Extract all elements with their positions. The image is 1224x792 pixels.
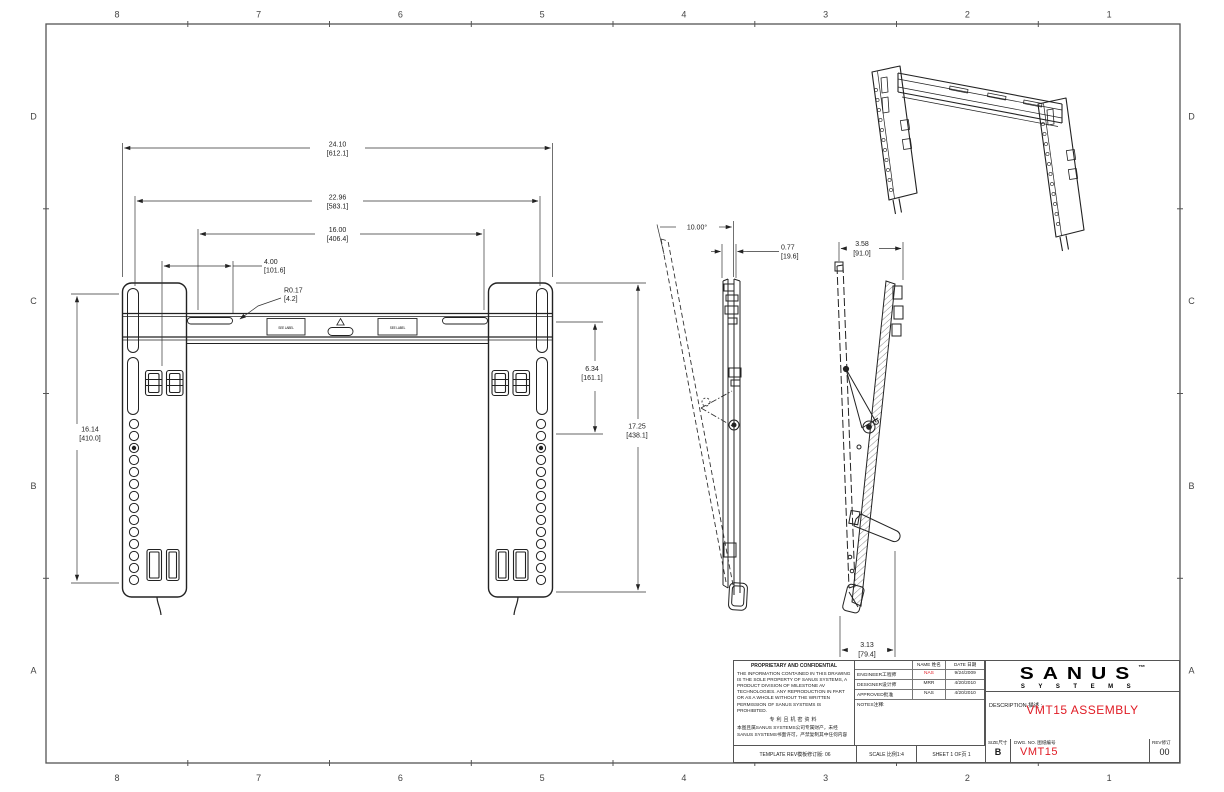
- sheet-label: SHEET 1 OF页 1: [917, 746, 986, 762]
- svg-text:[438.1]: [438.1]: [626, 433, 647, 440]
- alignment-triangle-icon: [337, 319, 344, 326]
- svg-text:C: C: [30, 296, 37, 306]
- dwg-cell: DWG. NO. 图纸编号 VMT15: [1011, 739, 1150, 762]
- svg-text:[101.6]: [101.6]: [264, 268, 285, 275]
- svg-text:8: 8: [114, 773, 119, 783]
- svg-text:2: 2: [965, 10, 970, 20]
- size-label: SIZE尺寸: [988, 740, 1008, 746]
- svg-text:6.34: 6.34: [585, 366, 599, 373]
- svg-text:4.00: 4.00: [264, 259, 278, 266]
- svg-text:D: D: [30, 112, 37, 122]
- svg-text:B: B: [1188, 481, 1194, 491]
- proprietary-heading-zh: 专利且机密资料: [737, 716, 851, 723]
- side-view-open: 3.58 [91.0] 3.13 [79.4]: [835, 241, 903, 659]
- svg-text:[612.1]: [612.1]: [327, 151, 348, 158]
- front-view: SEE LABEL SEE LABEL 24.10 [612.1] 22.96: [71, 142, 648, 616]
- rev-value: 00: [1152, 747, 1177, 757]
- proprietary-notice: PROPRIETARY AND CONFIDENTIAL THE INFORMA…: [734, 661, 855, 745]
- approvals-table: NAME 姓名 DATE 日期 ENGINEER工程师 NAS 9/24/200…: [855, 661, 985, 745]
- svg-text:[410.0]: [410.0]: [79, 436, 100, 443]
- size-value: B: [988, 747, 1008, 757]
- svg-text:R0.17: R0.17: [284, 288, 303, 295]
- svg-text:C: C: [1188, 296, 1195, 306]
- svg-text:7: 7: [256, 10, 261, 20]
- approvals-name-header: NAME 姓名: [913, 661, 947, 669]
- svg-text:8: 8: [114, 10, 119, 20]
- svg-text:3: 3: [823, 10, 828, 20]
- scale-label: SCALE 比例1:4: [857, 746, 917, 762]
- svg-text:[4.2]: [4.2]: [284, 296, 298, 303]
- svg-text:D: D: [1188, 112, 1195, 122]
- proprietary-body: THE INFORMATION CONTAINED IN THIS DRAWIN…: [737, 671, 851, 714]
- rev-label: REV修订: [1152, 740, 1177, 746]
- approvals-row-designer: DESIGNER设计师 MRR 4/20/2010: [855, 680, 984, 690]
- svg-text:24.10: 24.10: [329, 142, 347, 149]
- trademark-symbol: ™: [1138, 664, 1145, 670]
- approvals-date-header: DATE 日期: [946, 661, 984, 669]
- isometric-rail: [898, 73, 1062, 127]
- proprietary-body-zh: 本图且属SANUS SYSTEMS公司专属财产，未经SANUS SYSTEMS书…: [737, 725, 851, 738]
- svg-text:17.25: 17.25: [628, 424, 646, 431]
- proprietary-heading: PROPRIETARY AND CONFIDENTIAL: [737, 663, 851, 670]
- svg-text:5: 5: [540, 773, 545, 783]
- svg-text:4: 4: [681, 773, 686, 783]
- notes-label: NOTES注释:: [855, 700, 984, 745]
- side-view-tilt: 10.00° 0.77 [19.6]: [657, 221, 799, 610]
- svg-text:22.96: 22.96: [329, 195, 347, 202]
- approvals-row-engineer: ENGINEER工程师 NAS 9/24/2009: [855, 670, 984, 680]
- svg-text:4: 4: [681, 10, 686, 20]
- svg-text:7: 7: [256, 773, 261, 783]
- svg-text:16.00: 16.00: [329, 227, 347, 234]
- size-cell: SIZE尺寸 B: [986, 739, 1011, 762]
- rev-cell: REV修订 00: [1150, 739, 1179, 762]
- svg-text:1: 1: [1107, 773, 1112, 783]
- sheet-border: [43, 21, 1183, 766]
- tilt-angle-label: 10.00°: [687, 224, 708, 232]
- rail-label-text: SEE LABEL: [278, 326, 294, 330]
- svg-text:6: 6: [398, 773, 403, 783]
- svg-text:[161.1]: [161.1]: [581, 375, 602, 382]
- svg-text:3: 3: [823, 773, 828, 783]
- sanus-logo-text: SANUS: [1020, 664, 1139, 683]
- svg-text:[583.1]: [583.1]: [327, 204, 348, 211]
- svg-text:[406.4]: [406.4]: [327, 236, 348, 243]
- svg-text:1: 1: [1107, 10, 1112, 20]
- brand-logo: SANUS™ SYSTEMS: [986, 661, 1179, 692]
- svg-text:[79.4]: [79.4]: [858, 652, 876, 659]
- dwg-value: VMT15: [1020, 746, 1146, 758]
- sanus-systems-text: SYSTEMS: [1021, 684, 1144, 690]
- title-block-strip: TEMPLATE REV模板修订版: 06 SCALE 比例1:4 SHEET …: [734, 745, 986, 762]
- description-value: VMT15 ASSEMBLY: [986, 703, 1179, 717]
- svg-text:B: B: [30, 481, 36, 491]
- svg-text:A: A: [1188, 666, 1194, 676]
- svg-text:6: 6: [398, 10, 403, 20]
- description-cell: DESCRIPTION 描述 : VMT15 ASSEMBLY: [986, 692, 1179, 739]
- rail-label-text: SEE LABEL: [390, 326, 406, 330]
- svg-text:A: A: [30, 666, 36, 676]
- title-block: PROPRIETARY AND CONFIDENTIAL THE INFORMA…: [733, 660, 1180, 763]
- tilt-dimensions: [657, 221, 779, 278]
- template-rev: TEMPLATE REV模板修订版: 06: [734, 746, 857, 762]
- tilt-depth-label: 0.77: [781, 245, 795, 252]
- svg-text:3.13: 3.13: [860, 642, 874, 649]
- title-block-brand-section: SANUS™ SYSTEMS DESCRIPTION 描述 : VMT15 AS…: [986, 661, 1179, 762]
- svg-text:16.14: 16.14: [81, 427, 99, 434]
- approvals-row-approved: APPROVED批准 NAS 4/20/2010: [855, 690, 984, 700]
- drawing-sheet: 8 7 6 5 4 3 2 1 8 7 6 5 4 3 2 1 D C B A …: [0, 0, 1224, 792]
- svg-text:2: 2: [965, 773, 970, 783]
- svg-text:3.58: 3.58: [855, 241, 869, 248]
- svg-text:[91.0]: [91.0]: [853, 251, 871, 258]
- isometric-view: [872, 66, 1084, 251]
- svg-text:[19.6]: [19.6]: [781, 254, 799, 261]
- svg-text:5: 5: [540, 10, 545, 20]
